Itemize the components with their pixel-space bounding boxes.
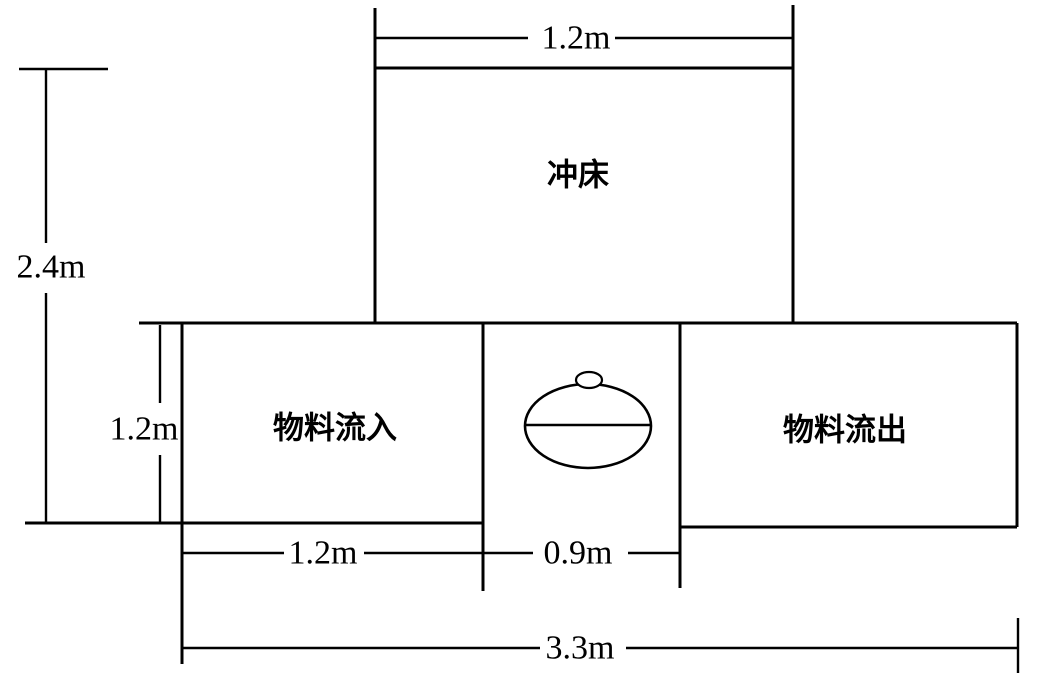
dimension-value: 1.2m bbox=[110, 411, 179, 448]
work-row: 物料流入 物料流出 bbox=[25, 323, 1017, 664]
dimension-value: 2.4m bbox=[17, 249, 86, 286]
workstation-layout-diagram: 冲床 物料流入 物料流出 1.2m bbox=[0, 0, 1055, 681]
dimension-operator-width: 0.9m bbox=[483, 535, 680, 572]
dimension-value: 1.2m bbox=[289, 535, 358, 572]
dimension-value: 0.9m bbox=[544, 535, 613, 572]
dimension-machine-width: 1.2m bbox=[375, 20, 793, 57]
diagram-canvas: 冲床 物料流入 物料流出 1.2m bbox=[0, 0, 1055, 681]
dimension-total-height: 2.4m bbox=[17, 69, 108, 523]
operator-figure bbox=[525, 372, 651, 468]
operator-head-ellipse bbox=[576, 372, 602, 388]
inflow-label: 物料流入 bbox=[273, 411, 397, 446]
dimension-row-height: 1.2m bbox=[110, 325, 179, 523]
dimension-value: 3.3m bbox=[546, 630, 615, 667]
dimension-total-width: 3.3m bbox=[182, 618, 1018, 673]
machine-label: 冲床 bbox=[547, 158, 609, 193]
dimension-value: 1.2m bbox=[542, 20, 611, 57]
dimension-inflow-width: 1.2m bbox=[182, 535, 483, 572]
outflow-label: 物料流出 bbox=[783, 413, 907, 448]
